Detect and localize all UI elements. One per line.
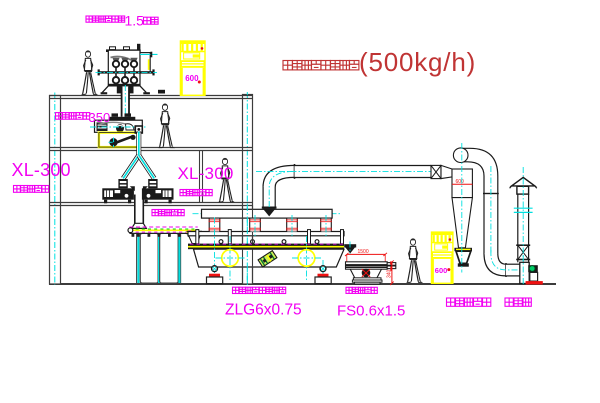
svg-text:XL-300: XL-300	[178, 164, 234, 183]
svg-text:600: 600	[185, 74, 199, 83]
svg-text:XL-300: XL-300	[12, 160, 71, 180]
svg-text:340: 340	[387, 269, 393, 278]
svg-text:350: 350	[89, 110, 111, 125]
svg-text:(500kg/h): (500kg/h)	[359, 47, 476, 77]
svg-text:600: 600	[435, 266, 448, 275]
svg-text:ZLG6x0.75: ZLG6x0.75	[225, 302, 302, 319]
svg-text:FS0.6x1.5: FS0.6x1.5	[337, 303, 405, 320]
svg-text:600: 600	[456, 179, 465, 185]
svg-text:1.5: 1.5	[125, 12, 145, 28]
svg-text:1500: 1500	[358, 249, 369, 255]
